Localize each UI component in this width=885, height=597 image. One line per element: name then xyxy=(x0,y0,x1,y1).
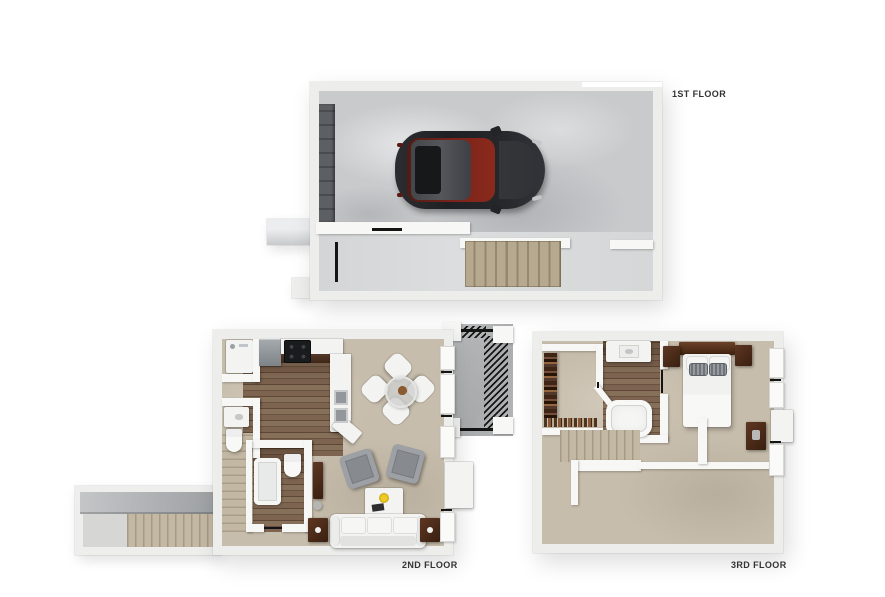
media-console xyxy=(313,462,323,499)
bathroom2-door-marker xyxy=(264,527,282,529)
second-floor-label: 2ND FLOOR xyxy=(402,560,458,570)
window-3f-1 xyxy=(769,348,784,378)
sofa-back xyxy=(340,536,416,546)
first-floor-entry-stoop xyxy=(292,278,310,298)
sofa-cushion-2 xyxy=(367,517,392,534)
window-3f-2 xyxy=(769,382,784,408)
nightstand-left xyxy=(663,346,680,367)
washer xyxy=(226,340,253,373)
second-floor-stair-wing xyxy=(75,486,221,555)
first-floor-roofline-notch xyxy=(582,82,662,87)
window-3f-tick-2 xyxy=(770,441,781,443)
deck-post-bottom-right xyxy=(493,417,513,434)
washer-dial xyxy=(230,344,235,349)
bedroom-loft-wall-stub xyxy=(698,418,707,464)
car-taillight-bottom xyxy=(397,193,403,197)
bathroom2-tub xyxy=(254,458,281,505)
window-2f-3 xyxy=(440,426,455,458)
halfbath-sink xyxy=(224,407,249,427)
nightstand-right xyxy=(735,345,752,366)
lamp-left xyxy=(315,527,321,533)
floorplan-page: 1ST FLOOR xyxy=(0,0,885,597)
closet-door-hinge-marker xyxy=(597,382,599,388)
third-floor-label: 3RD FLOOR xyxy=(731,560,787,570)
window-2f-1 xyxy=(440,346,455,370)
bathroom2-wall-bottom-left xyxy=(246,524,264,532)
dresser xyxy=(746,422,766,450)
loft-railing-thick xyxy=(571,460,641,471)
dining-table xyxy=(385,376,417,408)
bathroom2-wall-left xyxy=(246,440,252,532)
garage-door xyxy=(319,104,335,222)
loft-railing-return xyxy=(571,460,578,505)
sofa-cushion-3 xyxy=(393,517,418,534)
first-floor-label: 1ST FLOOR xyxy=(672,89,726,99)
bathroom2-toilet xyxy=(284,454,301,477)
floorplan-first-floor xyxy=(310,82,662,300)
sofa-cushion-1 xyxy=(341,517,366,534)
end-table-right xyxy=(420,518,440,542)
bathroom2-wall-top xyxy=(246,440,312,448)
car-sunroof xyxy=(415,146,441,194)
hanging-clothes xyxy=(544,353,557,426)
front-door-marker xyxy=(335,242,338,282)
deck-railing-balusters xyxy=(484,336,508,428)
sink-bowl xyxy=(619,345,639,358)
window-3f-3 xyxy=(769,444,784,476)
wing-lower-roof xyxy=(80,492,214,514)
bed-pillow-gray-left xyxy=(689,363,708,376)
window-2f-tick-2 xyxy=(441,415,452,417)
coffee-table-book xyxy=(372,503,385,512)
bathroom3-door-marker xyxy=(661,370,663,393)
sofa xyxy=(330,514,426,548)
halfbath-toilet xyxy=(226,429,242,452)
third-floor-staircase xyxy=(560,430,640,462)
lamp-right xyxy=(427,527,433,533)
fireplace-bump-out xyxy=(445,462,473,508)
flower-vase xyxy=(379,493,389,503)
bed-pillow-gray-right xyxy=(709,363,727,376)
car-taillight-top xyxy=(397,143,403,147)
washer-panel xyxy=(239,344,248,347)
end-table-left xyxy=(308,518,328,542)
deck-post-top-right xyxy=(493,326,513,343)
window-2f-2 xyxy=(440,374,455,414)
closet-wall-top xyxy=(542,344,603,351)
dresser-decor xyxy=(752,430,760,440)
vanity-sink xyxy=(606,341,651,362)
bedroom-bump-out xyxy=(771,410,793,442)
first-floor-porch-canopy xyxy=(267,219,310,245)
wing-staircase xyxy=(127,514,221,547)
car xyxy=(395,131,545,209)
garage-entry-door-marker xyxy=(372,228,402,231)
window-3f-tick-1 xyxy=(770,379,781,381)
kitchen-sink-basin-2 xyxy=(334,408,348,423)
window-2f-tick-1 xyxy=(441,371,452,373)
range-cooktop xyxy=(284,340,311,363)
sofa-arm-left xyxy=(330,516,340,546)
refrigerator xyxy=(259,339,281,366)
first-floor-staircase xyxy=(465,241,561,287)
window-2f-4 xyxy=(440,512,455,542)
kitchen-sink-basin-1 xyxy=(334,390,348,405)
halfbath-wall-right xyxy=(253,398,260,458)
floorplan-third-floor xyxy=(533,332,783,553)
deck-stair-hatch xyxy=(462,326,486,338)
entry-right-wall-stub xyxy=(610,240,653,249)
floor-decor-item xyxy=(313,501,322,510)
window-2f-tick-3 xyxy=(441,509,452,511)
shoe-row xyxy=(544,418,597,427)
bathroom3-wall-right-lower xyxy=(660,394,668,441)
floorplan-second-floor xyxy=(213,330,453,555)
